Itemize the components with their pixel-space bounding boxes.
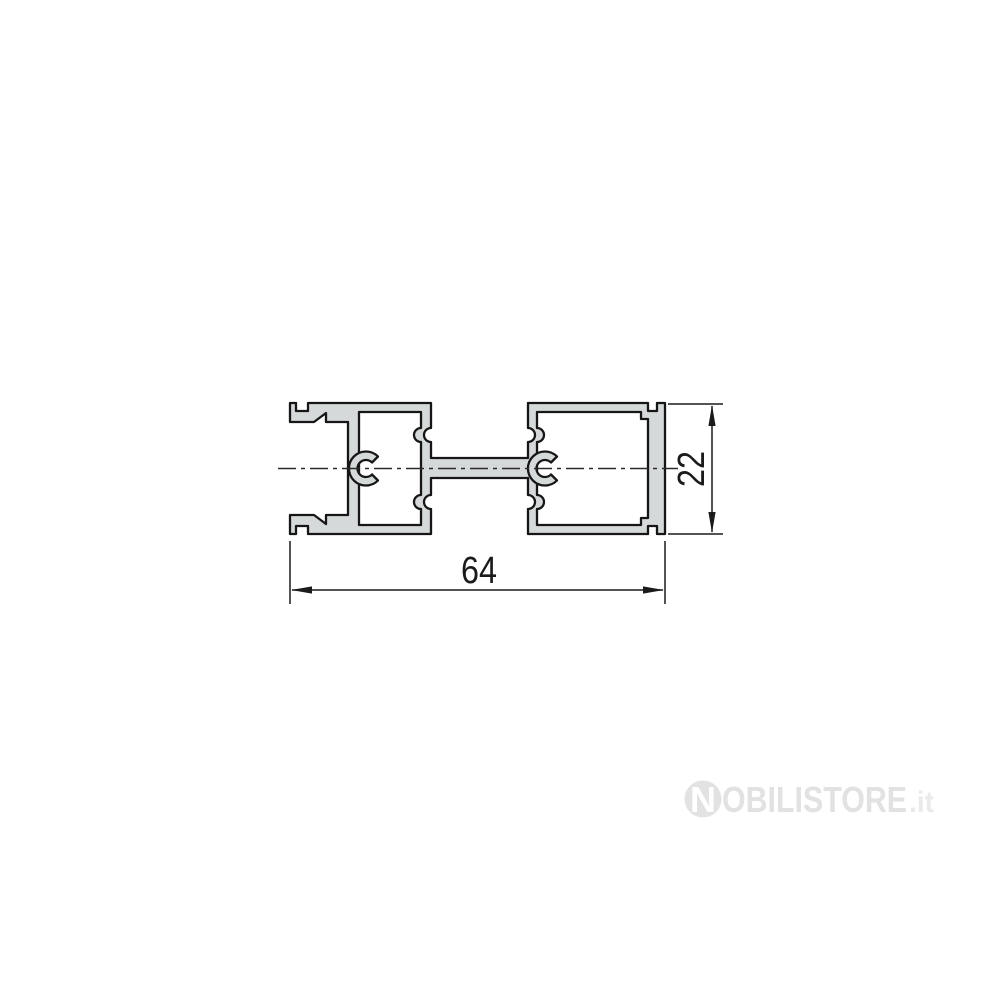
watermark-brand-text: OBILISTORE xyxy=(722,779,907,820)
technical-drawing-canvas: 64 22 N OBILISTORE .it xyxy=(0,0,1000,1000)
arrowhead-top-icon xyxy=(708,405,715,426)
watermark-logo-letter: N xyxy=(690,779,716,820)
watermark-tld-text: .it xyxy=(909,786,934,819)
dimension-height-value: 22 xyxy=(671,451,713,487)
product-image: 64 22 N OBILISTORE .it xyxy=(0,0,1000,1000)
arrowhead-bottom-icon xyxy=(708,512,715,533)
dimension-width-value: 64 xyxy=(461,550,497,592)
watermark: N OBILISTORE .it xyxy=(685,779,935,820)
arrowhead-right-icon xyxy=(643,586,664,593)
arrowhead-left-icon xyxy=(291,586,312,593)
